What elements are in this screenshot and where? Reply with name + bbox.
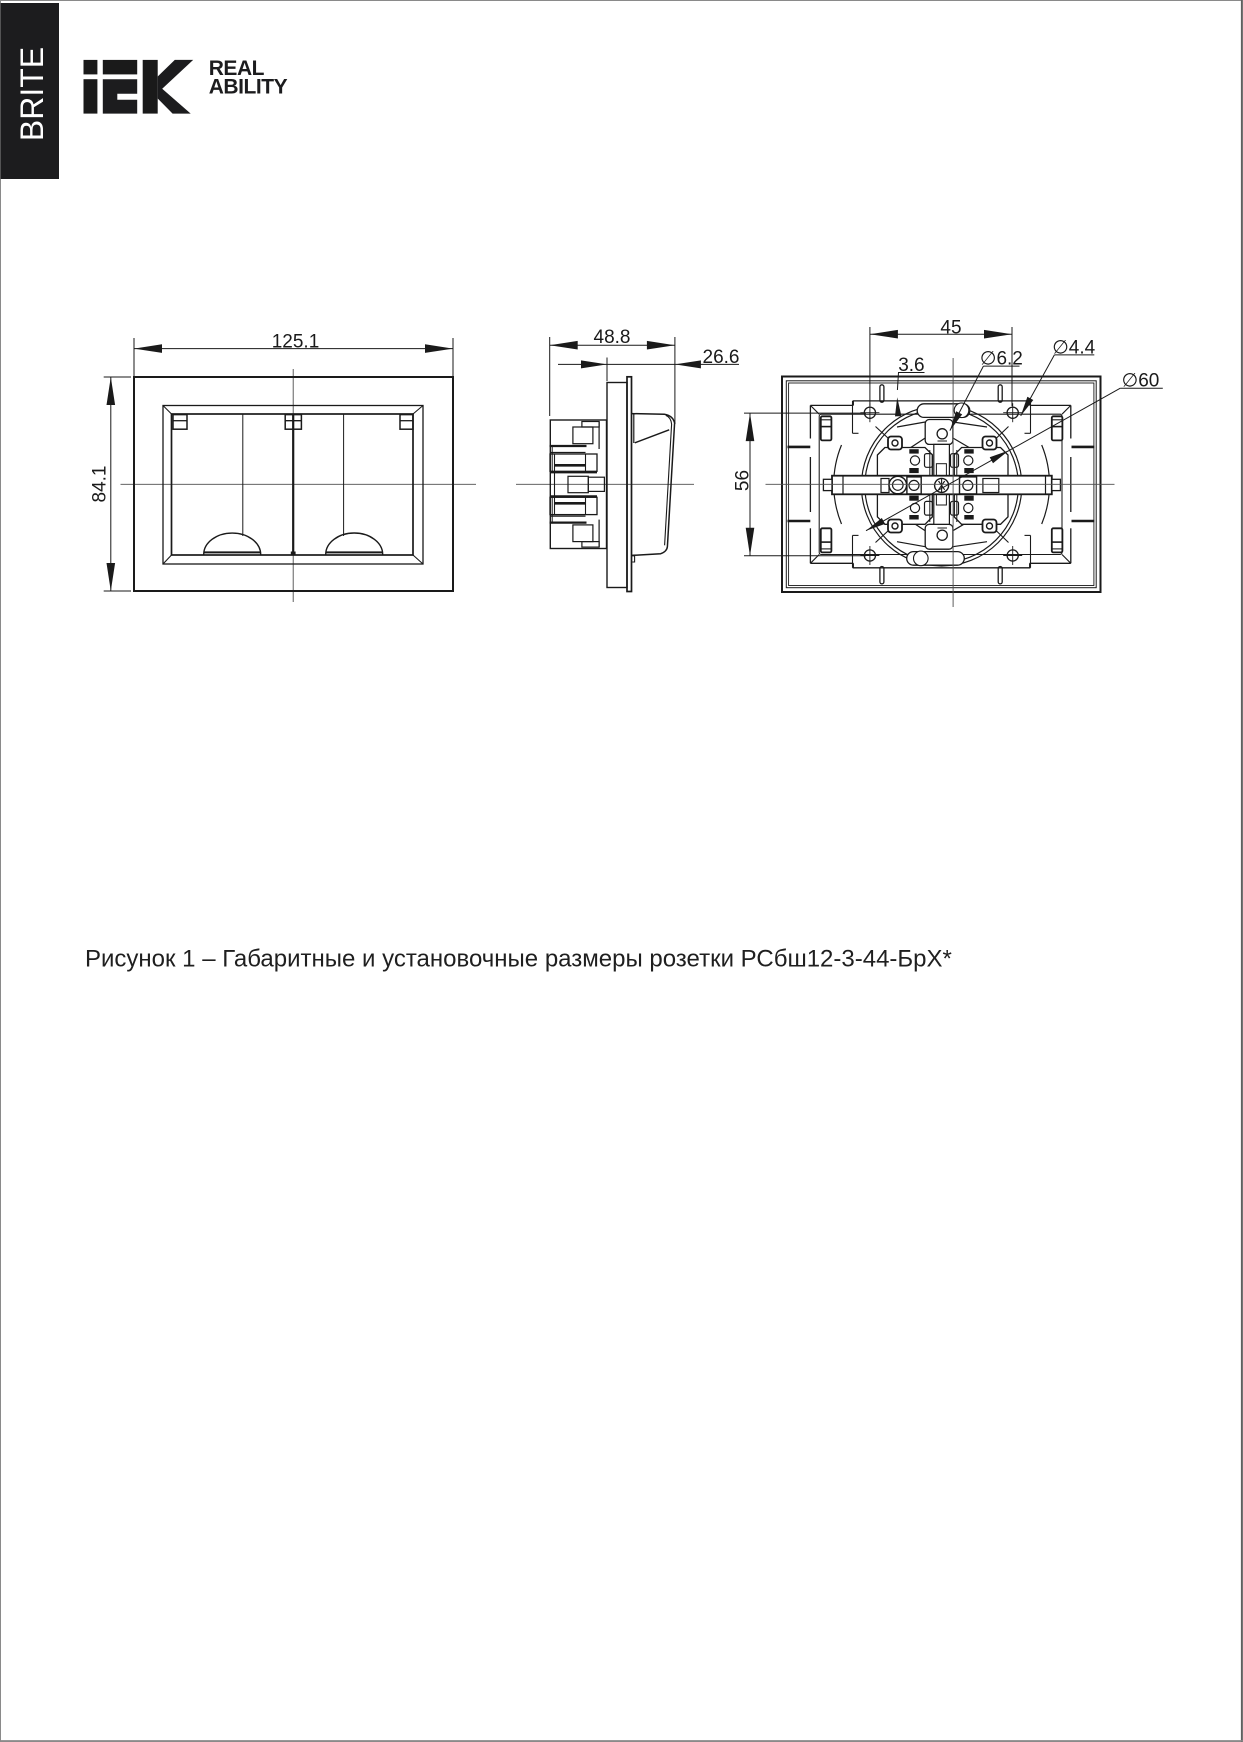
svg-text:45: 45 xyxy=(940,318,961,339)
svg-text:48.8: 48.8 xyxy=(594,327,631,348)
svg-text:Рисунок 1 – Габаритные и устан: Рисунок 1 – Габаритные и установочные ра… xyxy=(85,946,952,973)
svg-text:BRITE: BRITE xyxy=(14,47,50,141)
svg-text:84.1: 84.1 xyxy=(90,466,111,503)
svg-text:ABILITY: ABILITY xyxy=(209,76,288,99)
svg-text:125.1: 125.1 xyxy=(272,331,320,352)
svg-text:26.6: 26.6 xyxy=(703,347,740,368)
svg-text:56: 56 xyxy=(733,470,754,491)
